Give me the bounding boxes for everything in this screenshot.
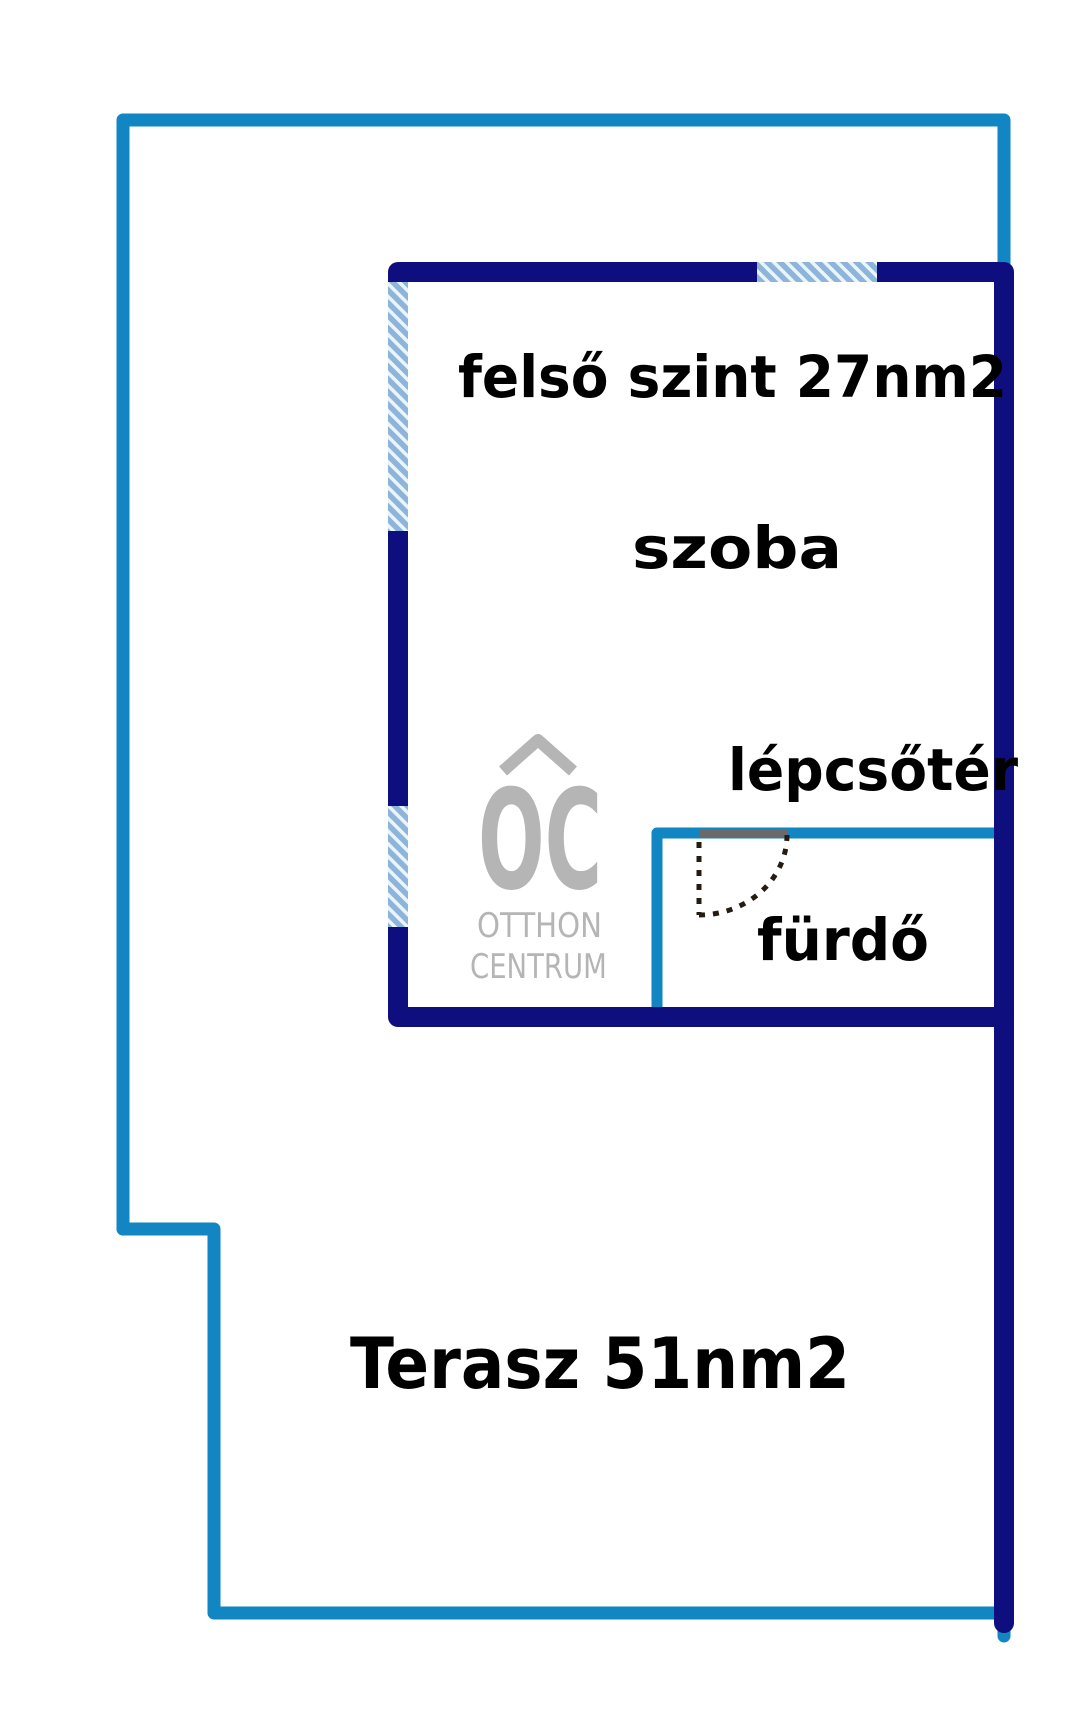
- labels: felső szint 27nm2 szoba lépcsőtér fürdő …: [350, 343, 1018, 1405]
- terrace-boundary-step-bottom: [123, 1229, 1004, 1613]
- bathroom-door: [699, 834, 787, 915]
- window-top-wall: [757, 262, 877, 282]
- logo-text-otthon: OTTHON: [477, 907, 602, 946]
- room-wall-top-left: [398, 272, 757, 292]
- logo-monogram: OC: [478, 759, 602, 920]
- floor-plan-page: OC OTTHON CENTRUM felső szint 27nm2 szob…: [0, 0, 1080, 1720]
- otthon-centrum-logo: OC OTTHON CENTRUM: [470, 740, 607, 987]
- label-room-szoba: szoba: [632, 514, 842, 582]
- label-terrace: Terasz 51nm2: [350, 1323, 850, 1405]
- label-bathroom: fürdő: [757, 906, 929, 974]
- label-stairwell: lépcsőtér: [728, 736, 1018, 804]
- window-left-wall-lower: [388, 806, 408, 927]
- label-level-title: felső szint 27nm2: [458, 343, 1007, 411]
- window-left-wall-upper: [388, 282, 408, 531]
- floor-plan-drawing: OC OTTHON CENTRUM felső szint 27nm2 szob…: [0, 0, 1080, 1720]
- logo-text-centrum: CENTRUM: [470, 948, 607, 987]
- door-swing-arc: [699, 835, 787, 915]
